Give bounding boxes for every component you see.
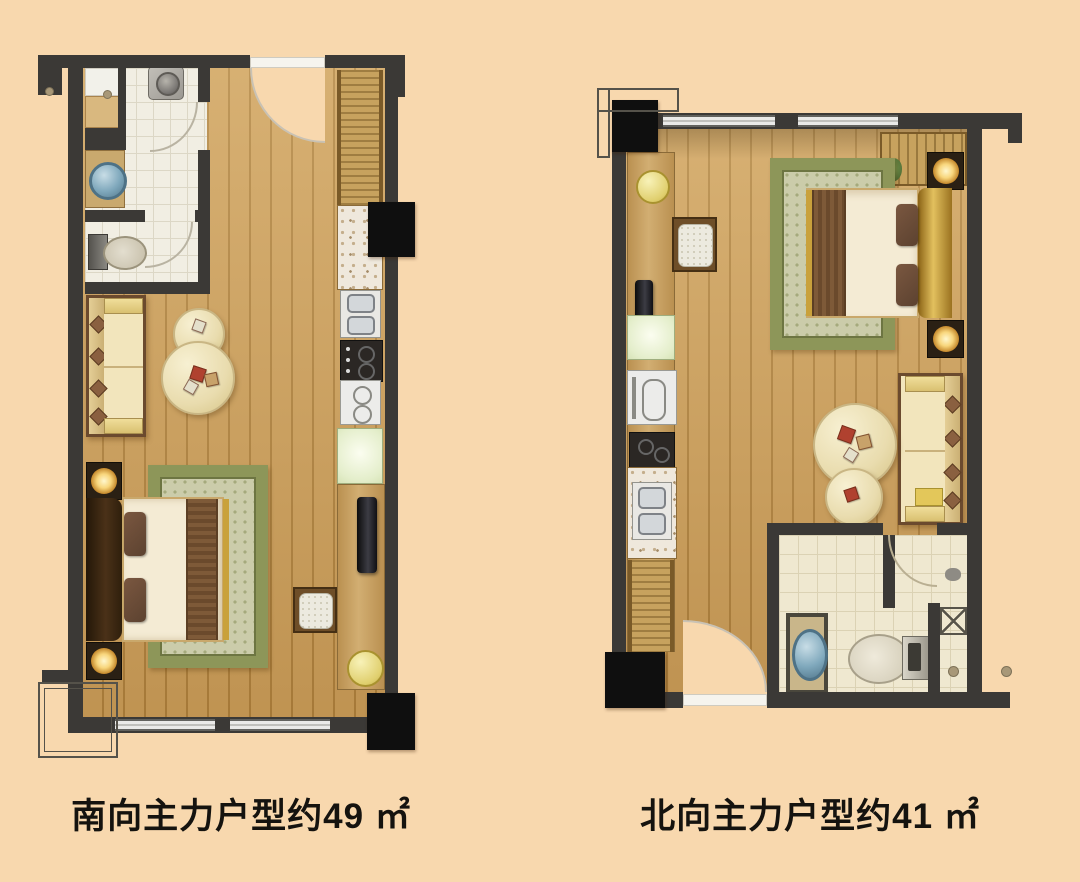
oven-handle-icon — [632, 377, 636, 419]
bed-foot-frame — [806, 190, 812, 316]
washing-machine-icon — [148, 66, 184, 100]
wall-segment — [967, 129, 982, 692]
bed-headboard — [86, 498, 122, 641]
nightstand — [86, 462, 122, 500]
bed-pillow-icon — [896, 264, 918, 306]
chair-cushion — [299, 593, 333, 629]
sofa-armrest — [905, 506, 945, 522]
burner-icon — [654, 447, 670, 463]
wall-segment — [937, 523, 967, 535]
wardrobe — [337, 70, 383, 205]
stove — [629, 432, 675, 469]
kitchen-sink-basin-icon — [347, 316, 375, 335]
bed-foot-frame — [223, 499, 229, 640]
floor-plan-page: 南向主力户型约49 ㎡ 北向主力户型约41 ㎡ — [0, 0, 1080, 882]
shower-head-icon — [945, 568, 961, 581]
entry-door-frame — [250, 57, 325, 68]
wall-segment — [85, 282, 210, 294]
bathroom-sink-icon — [89, 162, 127, 200]
sofa-armrest — [104, 418, 143, 434]
floor-plan-north — [595, 85, 1025, 760]
counter-green — [337, 428, 383, 484]
kitchen-sink-unit — [632, 482, 672, 540]
kitchen-sink-basin-icon — [638, 513, 666, 535]
toilet-tank-icon — [902, 636, 930, 680]
balcony-outline — [38, 682, 118, 758]
marker-dot — [1001, 666, 1012, 677]
cooktop — [340, 380, 381, 425]
wall-segment — [198, 68, 210, 102]
stove-knob-icon — [346, 347, 350, 351]
wall-segment — [612, 152, 626, 655]
bed-pillow-icon — [896, 204, 918, 246]
ottoman-icon — [636, 170, 670, 204]
desk-chair — [293, 587, 337, 633]
wall-segment — [85, 128, 125, 150]
sofa-seat-cushion — [905, 392, 945, 452]
entry-door-frame — [683, 694, 767, 706]
rug-cushion-icon — [204, 372, 219, 387]
wardrobe — [628, 560, 674, 652]
marker-dot — [103, 90, 112, 99]
sofa-seat-cushion — [104, 314, 143, 368]
stove — [340, 340, 383, 382]
bed-headboard-gold — [918, 188, 952, 318]
sofa-armrest — [104, 298, 143, 314]
round-rug-small — [825, 468, 883, 526]
burner-icon — [358, 363, 375, 380]
oven — [627, 370, 677, 425]
structural-column — [605, 652, 665, 708]
wall-segment — [767, 535, 779, 692]
sofa-armrest — [905, 376, 945, 392]
caption-north-unit: 北向主力户型约41 ㎡ — [595, 788, 1025, 839]
double-bed — [86, 497, 231, 642]
burner-icon — [353, 386, 372, 405]
sofa — [86, 295, 146, 437]
nightstand — [927, 320, 964, 358]
wall-segment — [85, 210, 145, 222]
kitchen-sink-unit — [340, 290, 381, 338]
kitchen-sink-basin-icon — [347, 294, 375, 313]
toilet-flush-panel-icon — [908, 643, 921, 671]
floor-drain-icon — [940, 607, 967, 635]
wall-segment — [68, 55, 83, 733]
rug-cushion-icon — [837, 425, 856, 444]
balcony-outline — [597, 88, 610, 158]
lamp-icon — [933, 158, 959, 184]
rug-cushion-icon — [856, 434, 873, 451]
counter-green — [627, 315, 675, 360]
window — [798, 115, 898, 127]
window — [663, 115, 775, 127]
tv-icon — [357, 497, 377, 573]
balcony-inner-line — [44, 688, 112, 752]
wall-segment — [385, 68, 398, 693]
counter-stool — [672, 217, 717, 272]
bed-runner — [186, 499, 218, 640]
sofa-throw — [915, 488, 943, 506]
stove-knob-icon — [346, 358, 350, 362]
bathroom-sink-icon — [792, 629, 828, 681]
structural-column — [368, 202, 415, 257]
window — [115, 719, 215, 731]
wall-segment — [195, 210, 210, 222]
lamp-icon — [91, 648, 117, 674]
rug-cushion-icon — [843, 447, 860, 464]
nightstand — [86, 642, 122, 680]
wall-segment — [1008, 113, 1022, 143]
oven-door-icon — [642, 379, 666, 421]
bed-pillow-icon — [124, 512, 146, 556]
burner-icon — [358, 346, 375, 363]
ottoman-icon — [347, 650, 384, 687]
double-bed — [806, 188, 952, 318]
washer-drum-icon — [156, 72, 180, 96]
toilet-bowl-icon — [848, 634, 910, 684]
stove-knob-icon — [346, 369, 350, 373]
sofa — [898, 373, 963, 525]
lamp-icon — [933, 326, 959, 352]
round-rug-large — [161, 341, 235, 415]
wall-segment — [928, 603, 940, 692]
wall-segment — [767, 523, 883, 535]
marker-dot — [45, 87, 54, 96]
toilet-bowl-icon — [103, 236, 147, 270]
burner-icon — [638, 439, 654, 455]
burner-icon — [353, 405, 372, 424]
structural-column — [367, 693, 415, 750]
wall-segment — [767, 692, 1010, 708]
bed-pillow-icon — [124, 578, 146, 622]
rug-cushion-icon — [843, 486, 859, 502]
nightstand — [927, 152, 964, 190]
lamp-icon — [91, 468, 117, 494]
caption-south-unit: 南向主力户型约49 ㎡ — [35, 788, 447, 839]
bed-runner — [812, 190, 846, 316]
stool-cushion — [678, 224, 713, 267]
floor-plan-south — [35, 50, 447, 766]
marker-dot — [948, 666, 959, 677]
window — [230, 719, 330, 731]
kitchen-sink-basin-icon — [638, 487, 666, 509]
